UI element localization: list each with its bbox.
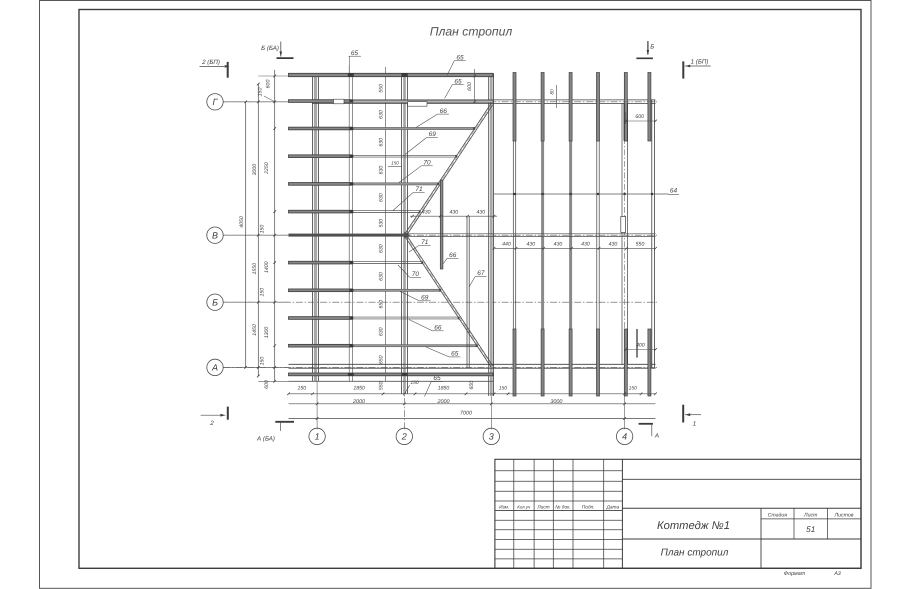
svg-text:65: 65: [454, 78, 462, 85]
svg-text:1300: 1300: [264, 327, 270, 339]
svg-text:630: 630: [379, 272, 385, 281]
svg-text:150: 150: [258, 88, 264, 97]
svg-text:150: 150: [410, 380, 419, 386]
svg-text:430: 430: [449, 209, 458, 215]
svg-text:600: 600: [467, 82, 473, 91]
svg-text:600: 600: [264, 380, 270, 389]
svg-text:630: 630: [379, 110, 385, 119]
svg-text:550: 550: [379, 381, 385, 390]
svg-text:150: 150: [260, 357, 266, 366]
svg-text:2: 2: [209, 420, 214, 427]
svg-text:3000: 3000: [550, 399, 562, 405]
svg-text:71: 71: [415, 186, 423, 193]
svg-text:Кол.уч: Кол.уч: [517, 504, 531, 509]
svg-text:430: 430: [554, 242, 563, 248]
svg-text:Лист: Лист: [536, 504, 549, 510]
svg-text:67: 67: [477, 270, 485, 277]
svg-text:Лист: Лист: [803, 513, 818, 519]
svg-text:65: 65: [351, 50, 359, 57]
svg-text:1 (БП): 1 (БП): [691, 59, 709, 66]
svg-text:В: В: [212, 230, 218, 240]
svg-text:Формат: Формат: [784, 571, 806, 577]
svg-text:430: 430: [526, 242, 535, 248]
svg-text:2 (БП): 2 (БП): [201, 59, 220, 66]
svg-text:А3: А3: [833, 571, 841, 577]
svg-text:400: 400: [636, 343, 645, 349]
svg-text:1: 1: [693, 421, 696, 428]
svg-text:Б: Б: [650, 44, 654, 51]
svg-text:Б (БА): Б (БА): [261, 45, 279, 52]
svg-text:План стропил: План стропил: [430, 25, 513, 39]
svg-text:2000: 2000: [437, 399, 450, 405]
svg-text:66: 66: [449, 252, 457, 259]
svg-text:69: 69: [421, 295, 429, 302]
svg-text:2250: 2250: [264, 162, 270, 175]
svg-text:Коттедж №1: Коттедж №1: [657, 520, 730, 532]
svg-text:65: 65: [433, 375, 441, 382]
svg-text:65: 65: [451, 351, 459, 358]
svg-text:600: 600: [266, 80, 272, 89]
svg-text:51: 51: [806, 525, 815, 534]
svg-text:80: 80: [550, 89, 556, 95]
svg-text:№ док.: № док.: [555, 504, 570, 510]
svg-text:69: 69: [429, 131, 437, 138]
svg-text:530: 530: [379, 219, 385, 228]
svg-text:1850: 1850: [438, 386, 450, 392]
svg-text:550: 550: [379, 84, 385, 93]
svg-text:550: 550: [636, 242, 645, 248]
svg-text:64: 64: [670, 187, 678, 194]
svg-text:650: 650: [379, 355, 385, 364]
svg-text:Б: Б: [212, 297, 218, 307]
svg-text:Листов: Листов: [834, 513, 854, 519]
svg-text:150: 150: [499, 386, 508, 392]
svg-text:600: 600: [635, 114, 644, 120]
svg-text:430: 430: [422, 209, 431, 215]
svg-text:70: 70: [423, 160, 431, 167]
svg-text:Стадия: Стадия: [768, 513, 788, 519]
svg-text:А (БА): А (БА): [256, 435, 275, 442]
svg-text:150: 150: [297, 386, 306, 392]
svg-text:66: 66: [440, 108, 448, 115]
svg-text:65: 65: [456, 54, 464, 61]
svg-text:630: 630: [379, 138, 385, 147]
svg-text:430: 430: [609, 242, 618, 248]
svg-text:3: 3: [489, 432, 494, 442]
svg-text:4050: 4050: [239, 216, 245, 228]
svg-text:150: 150: [629, 386, 638, 392]
svg-text:Подп.: Подп.: [582, 504, 595, 510]
svg-text:1850: 1850: [353, 386, 365, 392]
svg-text:430: 430: [581, 242, 590, 248]
svg-text:650: 650: [379, 300, 385, 309]
svg-text:70: 70: [412, 271, 420, 278]
svg-text:430: 430: [476, 209, 485, 215]
svg-text:630: 630: [379, 327, 385, 336]
svg-text:Дата: Дата: [605, 504, 619, 510]
svg-text:1400: 1400: [264, 261, 270, 273]
svg-text:2: 2: [401, 432, 407, 442]
svg-text:А: А: [211, 363, 218, 373]
svg-text:150: 150: [260, 288, 266, 297]
svg-text:7000: 7000: [460, 410, 472, 416]
svg-text:600: 600: [469, 381, 475, 390]
svg-text:1: 1: [315, 432, 320, 442]
svg-text:440: 440: [502, 242, 511, 248]
svg-text:План стропил: План стропил: [661, 548, 729, 559]
svg-text:150: 150: [260, 225, 266, 234]
svg-text:3000: 3000: [252, 164, 258, 176]
svg-text:630: 630: [379, 166, 385, 175]
svg-text:66: 66: [434, 325, 442, 332]
svg-text:630: 630: [379, 193, 385, 202]
svg-text:1450: 1450: [252, 324, 258, 336]
svg-text:4: 4: [622, 432, 627, 442]
svg-text:1550: 1550: [252, 263, 258, 275]
svg-text:71: 71: [421, 239, 429, 246]
svg-text:630: 630: [379, 244, 385, 253]
svg-text:2000: 2000: [352, 399, 365, 405]
svg-text:А: А: [654, 433, 659, 440]
svg-text:Изм.: Изм.: [499, 504, 509, 510]
svg-text:150: 150: [391, 160, 399, 165]
